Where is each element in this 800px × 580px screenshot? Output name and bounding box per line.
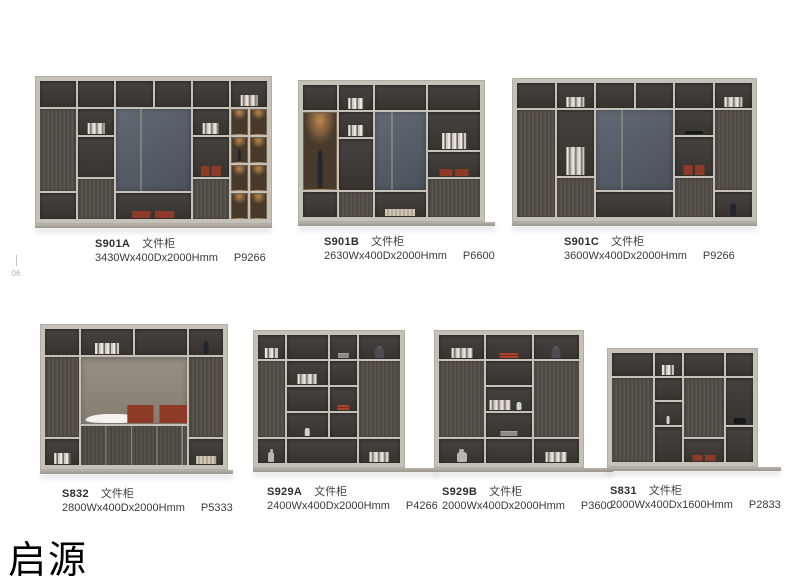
cabinet-cell [78, 109, 114, 135]
cabinet-cell [655, 353, 682, 376]
cabinet-cell [287, 361, 328, 385]
decor-books [348, 125, 364, 135]
page-marker-tick [16, 255, 17, 266]
decor-box [128, 405, 187, 422]
cabinet-cell [517, 83, 555, 108]
cabinet-cell [231, 165, 248, 191]
cabinet-cell [45, 329, 79, 355]
product-s901c: S901C文件柜 3600Wx400Dx2000HmmP9266 [512, 78, 757, 263]
product-model: S831 [610, 485, 637, 497]
cabinet-cell [439, 439, 484, 463]
cabinet-base [607, 467, 781, 471]
cabinet-cell [231, 137, 248, 163]
cabinet-cell [116, 193, 190, 219]
cabinet-cell [78, 179, 114, 219]
cabinet-cell [596, 83, 634, 108]
product-model: S901C [564, 236, 599, 248]
cabinet-base [40, 470, 233, 474]
product-code: P5333 [201, 502, 233, 514]
product-dimensions: 2630Wx400Dx2000Hmm [324, 250, 447, 262]
decor-binder [338, 353, 348, 358]
cabinet-cell [250, 137, 267, 163]
cabinet-cell [655, 402, 682, 425]
cabinet-cell [486, 439, 531, 463]
cabinet-cell [359, 335, 400, 359]
product-dimensions: 2000Wx400Dx2000Hmm [442, 500, 565, 512]
product-dimensions: 3600Wx400Dx2000Hmm [564, 250, 687, 262]
cabinet-cell [439, 361, 484, 437]
product-dimensions: 3430Wx400Dx2000Hmm [95, 252, 218, 264]
cabinet-cell [81, 357, 187, 424]
product-dimensions: 2400Wx400Dx2000Hmm [267, 500, 390, 512]
decor-bottle [667, 416, 670, 424]
cabinet-cell [428, 179, 480, 217]
catalog-page: 06 S901A文件柜 3430Wx400Dx2000HmmP9266 S901… [0, 0, 800, 580]
decor-books [490, 400, 511, 410]
cabinet-cell [675, 110, 713, 135]
decor-books [88, 123, 105, 134]
decor-black [685, 131, 703, 134]
cabinet-cell [375, 112, 427, 190]
decor-books [546, 452, 567, 462]
decor-toy [552, 348, 561, 358]
cabinet-cell [287, 413, 328, 437]
cabinet-cell [439, 335, 484, 359]
cabinet-cell [486, 361, 531, 385]
cabinet-image-s929a [253, 330, 405, 468]
cabinet-cell [726, 378, 753, 425]
decor-vase [318, 150, 323, 188]
cabinet-cell [557, 178, 595, 217]
decor-basket [385, 209, 415, 216]
product-model: S901B [324, 236, 359, 248]
product-s831: S831文件柜 2000Wx400Dx1600HmmP2833 [607, 348, 781, 512]
cabinet-cell [557, 110, 595, 176]
cabinet-cell [231, 81, 267, 107]
decor-stack [499, 353, 518, 358]
product-s832: S832文件柜 2800Wx400Dx2000HmmP5333 [40, 324, 233, 515]
decor-bottle [516, 402, 521, 410]
cabinet-base [434, 468, 613, 472]
decor-robot [457, 452, 467, 462]
cabinet-base [298, 222, 495, 226]
decor-box [201, 166, 221, 176]
cabinet-cell [189, 329, 223, 355]
brand-logo-text: 启源 [8, 529, 88, 580]
cabinet-cell [612, 378, 653, 462]
cabinet-image-s901a [35, 76, 272, 224]
cabinet-cell [116, 81, 152, 107]
cabinet-cell [655, 378, 682, 401]
decor-black [733, 418, 746, 424]
product-category: 文件柜 [649, 485, 682, 497]
decor-box [440, 169, 469, 175]
cabinet-cell [655, 427, 682, 462]
cabinet-base [35, 224, 272, 228]
product-caption: S901C文件柜 3600Wx400Dx2000HmmP9266 [512, 235, 757, 263]
product-category: 文件柜 [142, 238, 175, 250]
decor-robot [268, 452, 274, 462]
cabinet-cell [40, 193, 76, 219]
cabinet-cell [40, 109, 76, 191]
decor-binder [500, 431, 517, 436]
cabinet-cell [726, 353, 753, 376]
cabinet-cell [596, 192, 673, 217]
cabinet-cell [193, 109, 229, 135]
cabinet-cell [250, 109, 267, 135]
cabinet-image-s832 [40, 324, 228, 470]
cabinet-cell [231, 109, 248, 135]
cabinet-image-s831 [607, 348, 758, 467]
cabinet-cell [193, 179, 229, 219]
cabinet-cell [612, 353, 653, 376]
decor-stack [338, 405, 349, 410]
cabinet-cell [428, 85, 480, 110]
product-category: 文件柜 [101, 488, 134, 500]
page-marker-number: 06 [12, 269, 21, 278]
cabinet-cell [258, 335, 285, 359]
product-category: 文件柜 [371, 236, 404, 248]
decor-books [662, 365, 674, 375]
cabinet-cell [330, 413, 357, 437]
cabinet-cell [534, 335, 579, 359]
cabinet-cell [189, 439, 223, 465]
cabinet-cell [287, 439, 357, 463]
cabinet-cell [517, 110, 555, 217]
decor-box [133, 211, 175, 218]
product-s901a: S901A文件柜 3430Wx400Dx2000HmmP9266 [35, 76, 272, 265]
cabinet-cell [486, 387, 531, 411]
cabinet-cell [287, 387, 328, 411]
cabinet-cell [339, 85, 373, 110]
product-caption: S929B文件柜 2000Wx400Dx2000HmmP3600 [434, 485, 613, 513]
product-code: P6600 [463, 250, 495, 262]
cabinet-cell [231, 193, 248, 219]
cabinet-image-s901b [298, 80, 485, 222]
product-dimensions: 2000Wx400Dx1600Hmm [610, 499, 733, 511]
product-model: S901A [95, 238, 130, 250]
product-category: 文件柜 [611, 236, 644, 248]
product-dimensions: 2800Wx400Dx2000Hmm [62, 502, 185, 514]
cabinet-cell [258, 439, 285, 463]
decor-books [725, 97, 742, 108]
cabinet-cell [636, 83, 674, 108]
cabinet-cell [258, 361, 285, 437]
product-category: 文件柜 [314, 486, 347, 498]
product-code: P2833 [749, 499, 781, 511]
decor-vase [203, 341, 208, 354]
decor-books [265, 348, 277, 358]
cabinet-cell [339, 192, 373, 217]
product-model: S832 [62, 488, 89, 500]
decor-books [54, 453, 70, 464]
cabinet-cell [715, 83, 753, 108]
cabinet-cell [303, 112, 337, 190]
cabinet-cell [330, 335, 357, 359]
decor-box [692, 455, 715, 461]
decor-books [298, 374, 317, 384]
cabinet-cell [715, 110, 753, 190]
cabinet-cell [303, 192, 337, 217]
cabinet-cell [428, 152, 480, 177]
cabinet-cell [81, 426, 187, 465]
cabinet-cell [287, 335, 328, 359]
product-code: P9266 [703, 250, 735, 262]
cabinet-cell [684, 378, 725, 438]
decor-books [567, 147, 584, 175]
cabinet-cell [78, 81, 114, 107]
product-code: P4266 [406, 500, 438, 512]
cabinet-image-s929b [434, 330, 584, 468]
cabinet-cell [193, 81, 229, 107]
decor-books [370, 452, 389, 462]
cabinet-cell [78, 137, 114, 177]
cabinet-base [253, 468, 438, 472]
cabinet-cell [155, 81, 191, 107]
decor-basket [196, 456, 216, 464]
cabinet-cell [250, 193, 267, 219]
product-category: 文件柜 [489, 486, 522, 498]
decor-books [442, 133, 466, 149]
cabinet-cell [189, 357, 223, 438]
cabinet-cell [116, 109, 190, 191]
product-s929b: S929B文件柜 2000Wx400Dx2000HmmP3600 [434, 330, 613, 513]
cabinet-cell [81, 329, 133, 355]
product-s901b: S901B文件柜 2630Wx400Dx2000HmmP6600 [298, 80, 495, 263]
decor-box [683, 165, 704, 175]
page-marker: 06 [9, 255, 23, 278]
decor-books [202, 123, 219, 134]
cabinet-cell [330, 361, 357, 385]
cabinet-cell [339, 139, 373, 191]
cabinet-cell [45, 439, 79, 465]
cabinet-cell [330, 387, 357, 411]
cabinet-cell [339, 112, 373, 137]
product-model: S929B [442, 486, 477, 498]
product-s929a: S929A文件柜 2400Wx400Dx2000HmmP4266 [253, 330, 438, 513]
cabinet-cell [193, 137, 229, 177]
decor-toy [375, 348, 383, 358]
cabinet-cell [715, 192, 753, 217]
cabinet-cell [726, 427, 753, 462]
product-caption: S832文件柜 2800Wx400Dx2000HmmP5333 [40, 487, 233, 515]
product-code: P9266 [234, 252, 266, 264]
decor-bottle [305, 428, 310, 436]
cabinet-cell [684, 439, 725, 462]
cabinet-cell [303, 85, 337, 110]
decor-books [451, 348, 472, 358]
cabinet-cell [250, 165, 267, 191]
cabinet-cell [359, 439, 400, 463]
cabinet-base [512, 222, 757, 226]
cabinet-image-s901c [512, 78, 757, 222]
decor-books [348, 98, 364, 108]
cabinet-cell [45, 357, 79, 438]
cabinet-cell [428, 112, 480, 150]
product-caption: S901B文件柜 2630Wx400Dx2000HmmP6600 [298, 235, 495, 263]
cabinet-cell [675, 83, 713, 108]
cabinet-cell [486, 335, 531, 359]
cabinet-cell [675, 137, 713, 176]
cabinet-cell [534, 361, 579, 437]
cabinet-cell [534, 439, 579, 463]
cabinet-cell [675, 178, 713, 217]
cabinet-cell [684, 353, 725, 376]
cabinet-cell [486, 413, 531, 437]
cabinet-cell [359, 361, 400, 437]
decor-books [241, 95, 258, 106]
product-caption: S929A文件柜 2400Wx400Dx2000HmmP4266 [253, 485, 438, 513]
decor-books [95, 343, 119, 354]
cabinet-cell [40, 81, 76, 107]
decor-vase [730, 203, 736, 216]
product-caption: S831文件柜 2000Wx400Dx1600HmmP2833 [607, 484, 781, 512]
product-caption: S901A文件柜 3430Wx400Dx2000HmmP9266 [35, 237, 272, 265]
cabinet-cell [596, 110, 673, 190]
cabinet-cell [375, 192, 427, 217]
cabinet-cell [375, 85, 427, 110]
cabinet-cell [557, 83, 595, 108]
decor-vase [238, 149, 240, 161]
cabinet-cell [135, 329, 187, 355]
product-model: S929A [267, 486, 302, 498]
decor-books [567, 97, 584, 108]
